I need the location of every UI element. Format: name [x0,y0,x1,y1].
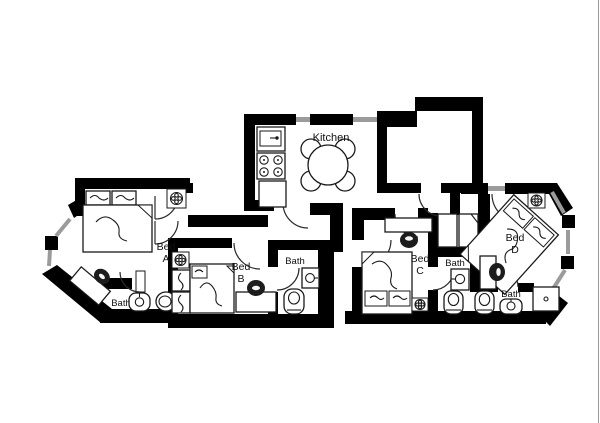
bed-b-label: Bed [232,261,251,273]
sink-icon [129,293,150,311]
bath-d-room: Bath [475,287,559,314]
window [353,117,377,122]
window [488,186,505,191]
bath-c-room: Bath [444,258,469,314]
ceiling-light-icon [167,189,186,208]
stove-icon [257,153,285,179]
wardrobe [172,270,190,313]
bath-b-label: Bath [285,256,305,267]
kitchen-counter [259,181,286,207]
bed-d-letter: D [511,244,519,256]
bed-b-room: Bed B [172,252,276,313]
door-arc [283,203,308,228]
bed-c-letter: C [416,265,424,277]
bed-c [362,252,412,314]
bed-c-room: Bed C [362,218,432,314]
door-panel [136,271,145,292]
dining-table [301,139,355,191]
window [49,250,50,266]
shower-tray [533,287,559,311]
toilet-icon [444,291,463,314]
bed-a-letter: A [162,253,169,265]
desk-and-chair [236,281,276,313]
bed-a-label: Bed [157,241,176,253]
kitchen-room: Kitchen [257,127,355,207]
ceiling-light-icon [528,193,545,208]
bed-b [190,264,234,313]
ceiling-light-icon [412,298,428,311]
kitchen-label: Kitchen [313,132,350,144]
sink-icon [451,269,469,290]
toilet-icon [475,291,494,314]
window [56,219,70,236]
sink-icon [302,268,319,288]
floor-plan: Kitchen Bed A Bath [0,0,600,423]
ceiling-light-icon [172,252,189,268]
bath-a-label: Bath [111,298,131,309]
bed-c-label: Bed [411,253,430,265]
floor-plan-canvas: Kitchen Bed A Bath [0,0,600,423]
bath-c-label: Bath [445,258,465,269]
sink-icon [500,299,522,314]
toilet-icon [284,289,304,314]
kitchen-sink-icon [257,127,285,151]
door-arc [277,268,299,290]
bath-b-room: Bath [284,256,319,314]
bed-d-label: Bed [506,232,525,244]
bed-a [83,191,152,252]
screenshot-edge-line [598,0,599,423]
desk-and-chair [385,218,432,248]
bed-b-letter: B [237,273,244,285]
window [296,117,310,122]
